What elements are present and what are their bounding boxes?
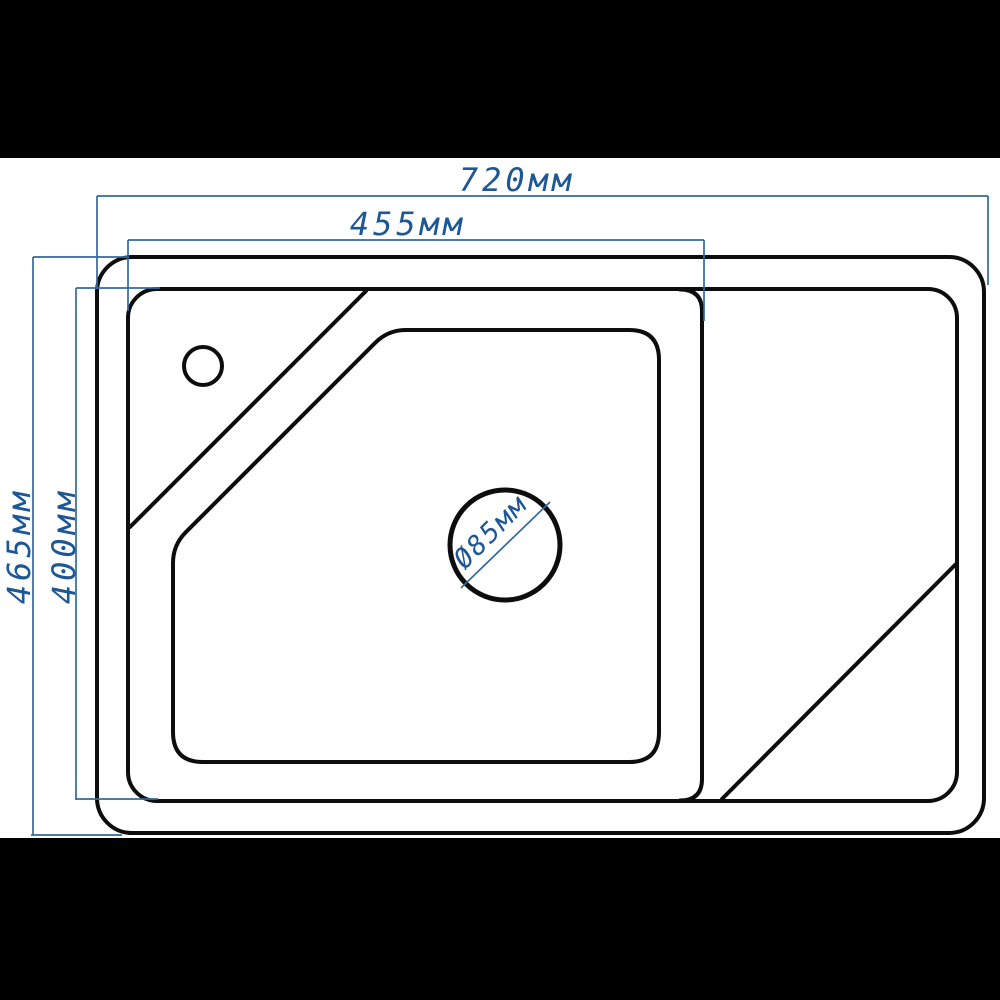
sink-outer-outline	[97, 257, 984, 833]
dimension-drain-diameter: Ø85мм	[448, 489, 550, 588]
faucet-hole	[184, 347, 222, 385]
outer-width-label: 720мм	[459, 161, 575, 199]
dimension-outer-width: 720мм	[97, 161, 988, 289]
bowl-depth-label: 400мм	[45, 488, 83, 604]
dimension-bowl-width: 455мм	[128, 205, 704, 321]
drain-diameter-label: Ø85мм	[448, 489, 534, 575]
sink-dimension-drawing: Ø85мм 720мм 455мм 465мм 400м	[0, 0, 1000, 1000]
dimension-bowl-depth: 400мм	[45, 288, 160, 800]
sink-rim-outline	[128, 289, 957, 801]
letterbox-bottom	[0, 838, 1000, 1000]
bowl-outline	[173, 330, 659, 762]
drainboard-divider-line	[680, 290, 702, 801]
outer-depth-label: 465мм	[0, 488, 38, 604]
drawing-canvas: Ø85мм 720мм 455мм 465мм 400м	[0, 0, 1000, 1000]
bowl-width-label: 455мм	[350, 205, 466, 243]
letterbox-top	[0, 0, 1000, 158]
rim-chamfer-line	[130, 291, 366, 527]
drainboard-slope-line	[722, 564, 956, 799]
